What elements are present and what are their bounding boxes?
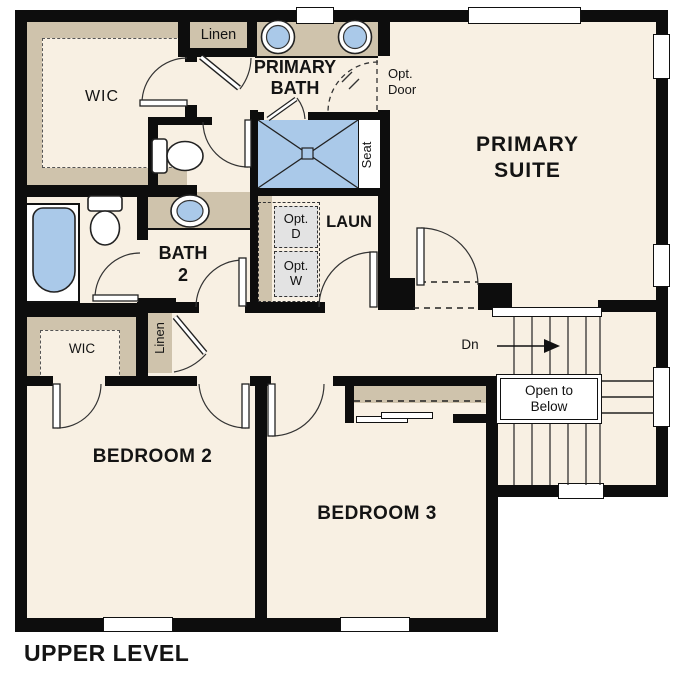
wall-suite-stub-right: [478, 283, 512, 310]
linen-upper-label: Linen: [190, 27, 247, 43]
wall-suite-bottom-right: [598, 300, 656, 312]
bath2-label: BATH 2: [152, 243, 214, 286]
wall-tubroom-bottom: [15, 303, 140, 317]
closet-bypass-door-2: [381, 412, 433, 419]
wall-laundry-bottom: [250, 302, 325, 313]
window-top-bath: [296, 7, 334, 24]
opt-washer-label-1: Opt.: [284, 258, 309, 273]
primary-wic-label: WIC: [62, 88, 142, 106]
wall-exterior-bottom: [15, 618, 498, 632]
wall-toilet-room-top: [148, 117, 212, 125]
bedroom3-closet-shelf: [352, 383, 486, 403]
shower-seat-label: Seat: [359, 125, 377, 185]
window-bottom-bedroom3: [340, 617, 410, 632]
wall-wic-door-stub-top: [185, 50, 197, 62]
floor-plan: Opt.D Opt.W Open to Below: [0, 0, 687, 687]
wall-hall-bottom-d: [333, 376, 486, 386]
wall-suite-stub-left: [390, 278, 415, 310]
window-right-suite-2: [653, 244, 670, 287]
bedroom3-label: BEDROOM 3: [288, 503, 466, 525]
primary-bath-vanity: [255, 18, 378, 58]
window-right-landing: [653, 367, 670, 427]
open-to-below-label: Open to Below: [513, 383, 585, 415]
wall-below-primary-wic: [15, 185, 197, 197]
primary-suite-label: PRIMARY SUITE: [450, 132, 605, 185]
opt-washer-label-2: W: [290, 273, 302, 288]
open-to-below-box: Open to Below: [496, 374, 602, 424]
wall-bed3-closet-left: [345, 383, 354, 423]
opt-dryer-label-1: Opt.: [284, 211, 309, 226]
tub-surround: [27, 203, 80, 303]
opt-dryer-label-2: D: [291, 226, 300, 241]
wall-hall-bottom-a: [15, 376, 53, 386]
wall-bedroom-divider: [255, 382, 267, 620]
shower-pan: [258, 120, 358, 188]
wall-hall-bottom-b: [105, 376, 197, 386]
wall-linen-bottom: [188, 48, 250, 57]
optional-door-label: Opt.Door: [388, 66, 438, 99]
bedroom2-wic-label: WIC: [50, 341, 114, 356]
stair-down-label: Dn: [455, 337, 485, 352]
plan-title: UPPER LEVEL: [24, 640, 304, 667]
wall-bath2-bottom-left: [137, 302, 199, 313]
wall-bed3-closet-stub: [453, 414, 486, 423]
primary-bath-label: PRIMARY BATH: [247, 57, 343, 98]
bath2-vanity: [148, 192, 250, 230]
wall-toilet-room-left: [148, 117, 158, 197]
optional-dryer: Opt.D: [274, 206, 318, 248]
wall-bath2-left: [137, 190, 148, 240]
stair-railing-top: [492, 307, 602, 317]
wall-exterior-left: [15, 10, 27, 632]
window-bottom-bedroom2: [103, 617, 173, 632]
window-bottom-stairwell: [558, 483, 604, 499]
shower-door-opening: [264, 112, 308, 120]
optional-washer: Opt.W: [274, 251, 318, 297]
window-top-suite: [468, 7, 581, 24]
wall-wic2-right: [136, 303, 148, 385]
window-right-suite-1: [653, 34, 670, 79]
hall-linen-label: Linen: [152, 306, 168, 370]
wall-vanity-right: [378, 18, 390, 56]
bedroom2-label: BEDROOM 2: [55, 446, 250, 468]
laundry-label: LAUN: [320, 213, 378, 232]
